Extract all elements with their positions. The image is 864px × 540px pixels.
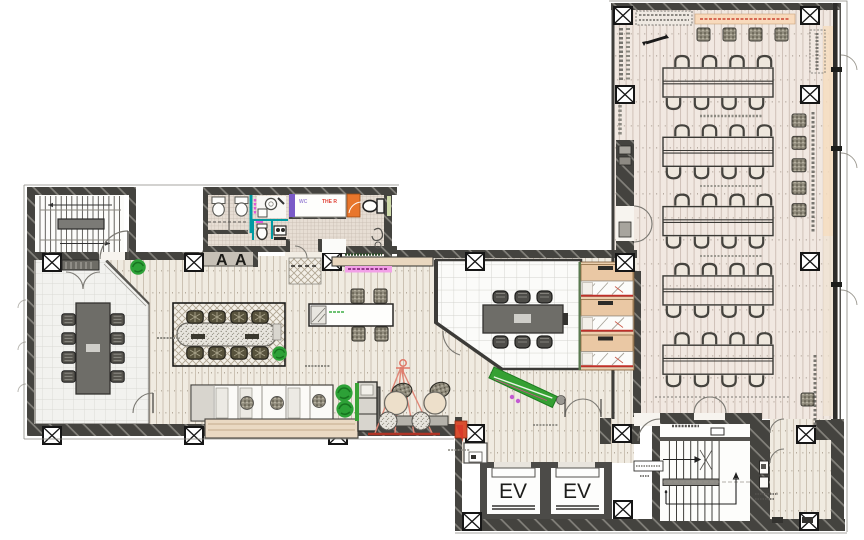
- svg-text:A: A: [235, 252, 247, 269]
- svg-text:EV: EV: [499, 480, 527, 503]
- svg-text:THE R: THE R: [322, 199, 337, 205]
- svg-text:WC: WC: [299, 199, 308, 205]
- svg-text:A: A: [216, 252, 228, 269]
- svg-text:EV: EV: [563, 480, 591, 503]
